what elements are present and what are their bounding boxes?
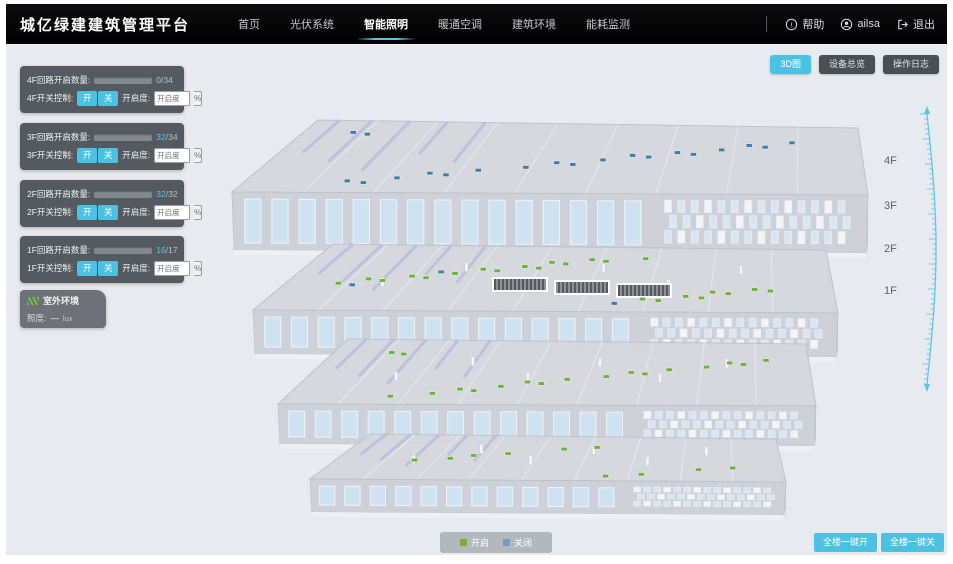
screenshot-stage: 城亿绿建建筑管理平台 首页 光伏系统 智能照明 暖通空调 建筑环境 能耗监测 !… xyxy=(0,0,953,564)
user-icon xyxy=(840,18,853,31)
all-off-button[interactable]: 全楼一键关 xyxy=(881,533,944,552)
floor-label-1f: 1F xyxy=(884,285,897,297)
circuit-count-value: 32/32 xyxy=(156,189,177,199)
view-toolbar: 3D图 设备总览 操作日志 xyxy=(770,55,939,74)
floor-panel-4f: 4F回路开启数量: 0/34 4F开关控制: 开关 开启度: % xyxy=(20,66,184,113)
dim-level-input[interactable] xyxy=(154,205,190,220)
user-zone: ! 帮助 ailsa 退出 xyxy=(766,16,935,32)
device-overview-button[interactable]: 设备总览 xyxy=(819,55,875,74)
legend-item-off: 关闭 xyxy=(503,536,532,549)
switch-control-label: 3F开关控制: xyxy=(27,149,73,161)
legend-off-swatch xyxy=(503,539,510,546)
outdoor-env-icon xyxy=(27,297,39,305)
floor-off-button[interactable]: 关 xyxy=(98,91,118,106)
circuit-count-value: 16/17 xyxy=(156,245,177,255)
floor-off-button[interactable]: 关 xyxy=(98,261,118,276)
logout-button[interactable]: 退出 xyxy=(896,16,935,32)
nav-item-home[interactable]: 首页 xyxy=(236,10,262,38)
illuminance-label: 照度: xyxy=(27,312,46,324)
circuit-count-label: 4F回路开启数量: xyxy=(27,74,90,86)
floor-panel-2f: 2F回路开启数量: 32/32 2F开关控制: 开关 开启度: % xyxy=(20,180,184,227)
outdoor-env-panel: 室外环境 照度: — lux xyxy=(20,290,106,328)
floor-on-button[interactable]: 开 xyxy=(77,261,97,276)
circuit-progress-bar xyxy=(94,77,152,84)
legend-on-label: 开启 xyxy=(471,536,489,549)
circuit-count-value: 32/34 xyxy=(156,132,177,142)
operation-log-button[interactable]: 操作日志 xyxy=(883,55,939,74)
svg-text:!: ! xyxy=(791,20,793,29)
all-on-button[interactable]: 全楼一键开 xyxy=(814,533,877,552)
legend-item-on: 开启 xyxy=(460,536,489,549)
floor-on-button[interactable]: 开 xyxy=(77,91,97,106)
illuminance-unit: lux xyxy=(63,314,73,323)
dim-level-input[interactable] xyxy=(154,91,190,106)
username-label: ailsa xyxy=(857,18,880,30)
user-menu[interactable]: ailsa xyxy=(840,18,880,31)
top-nav-bar: 城亿绿建建筑管理平台 首页 光伏系统 智能照明 暖通空调 建筑环境 能耗监测 !… xyxy=(6,4,947,44)
floor-panel-1f: 1F回路开启数量: 16/17 1F开关控制: 开关 开启度: % xyxy=(20,236,184,283)
logout-icon xyxy=(896,18,909,31)
switch-control-label: 4F开关控制: xyxy=(27,92,73,104)
dim-level-input[interactable] xyxy=(154,261,190,276)
dim-level-label: 开启度: xyxy=(122,262,150,274)
app-root: 城亿绿建建筑管理平台 首页 光伏系统 智能照明 暖通空调 建筑环境 能耗监测 !… xyxy=(6,4,947,555)
help-icon: ! xyxy=(785,18,798,31)
dim-level-input[interactable] xyxy=(154,148,190,163)
nav-item-hvac[interactable]: 暖通空调 xyxy=(436,10,484,38)
nav-item-smart-lighting[interactable]: 智能照明 xyxy=(362,10,410,38)
floor-off-button[interactable]: 关 xyxy=(98,205,118,220)
floor-on-button[interactable]: 开 xyxy=(77,148,97,163)
circuit-count-label: 3F回路开启数量: xyxy=(27,131,90,143)
switch-control-label: 1F开关控制: xyxy=(27,262,73,274)
help-button[interactable]: ! 帮助 xyxy=(785,16,824,32)
floor-off-button[interactable]: 关 xyxy=(98,148,118,163)
nav-item-building-env[interactable]: 建筑环境 xyxy=(510,10,558,38)
nav-item-pv-system[interactable]: 光伏系统 xyxy=(288,10,336,38)
circuit-progress-bar xyxy=(94,247,152,254)
legend-off-label: 关闭 xyxy=(514,536,532,549)
floor-explode-slider[interactable] xyxy=(905,104,945,394)
platform-title: 城亿绿建建筑管理平台 xyxy=(20,14,190,35)
help-label: 帮助 xyxy=(802,16,824,32)
floor-on-button[interactable]: 开 xyxy=(77,205,97,220)
nav-item-energy-monitor[interactable]: 能耗监测 xyxy=(584,10,632,38)
floor-label-2f: 2F xyxy=(884,243,897,255)
view-3d-button[interactable]: 3D图 xyxy=(770,55,811,74)
illuminance-value: — xyxy=(50,313,59,323)
building-3d-view[interactable] xyxy=(198,92,898,532)
nav-divider xyxy=(766,16,767,32)
outdoor-env-title: 室外环境 xyxy=(43,294,79,307)
switch-control-label: 2F开关控制: xyxy=(27,206,73,218)
main-nav: 首页 光伏系统 智能照明 暖通空调 建筑环境 能耗监测 xyxy=(236,10,632,38)
circuit-count-label: 2F回路开启数量: xyxy=(27,188,90,200)
floor-label-4f: 4F xyxy=(884,155,897,167)
bulk-actions: 全楼一键开 全楼一键关 xyxy=(814,533,944,552)
legend-on-swatch xyxy=(460,539,467,546)
dim-level-label: 开启度: xyxy=(122,206,150,218)
logout-label: 退出 xyxy=(913,16,935,32)
light-status-legend: 开启 关闭 xyxy=(440,532,552,553)
circuit-count-label: 1F回路开启数量: xyxy=(27,244,90,256)
dim-level-label: 开启度: xyxy=(122,149,150,161)
floor-panel-3f: 3F回路开启数量: 32/34 3F开关控制: 开关 开启度: % xyxy=(20,123,184,170)
circuit-count-value: 0/34 xyxy=(156,75,173,85)
circuit-progress-bar xyxy=(94,134,152,141)
circuit-progress-bar xyxy=(94,191,152,198)
floor-label-3f: 3F xyxy=(884,200,897,212)
dim-level-label: 开启度: xyxy=(122,92,150,104)
